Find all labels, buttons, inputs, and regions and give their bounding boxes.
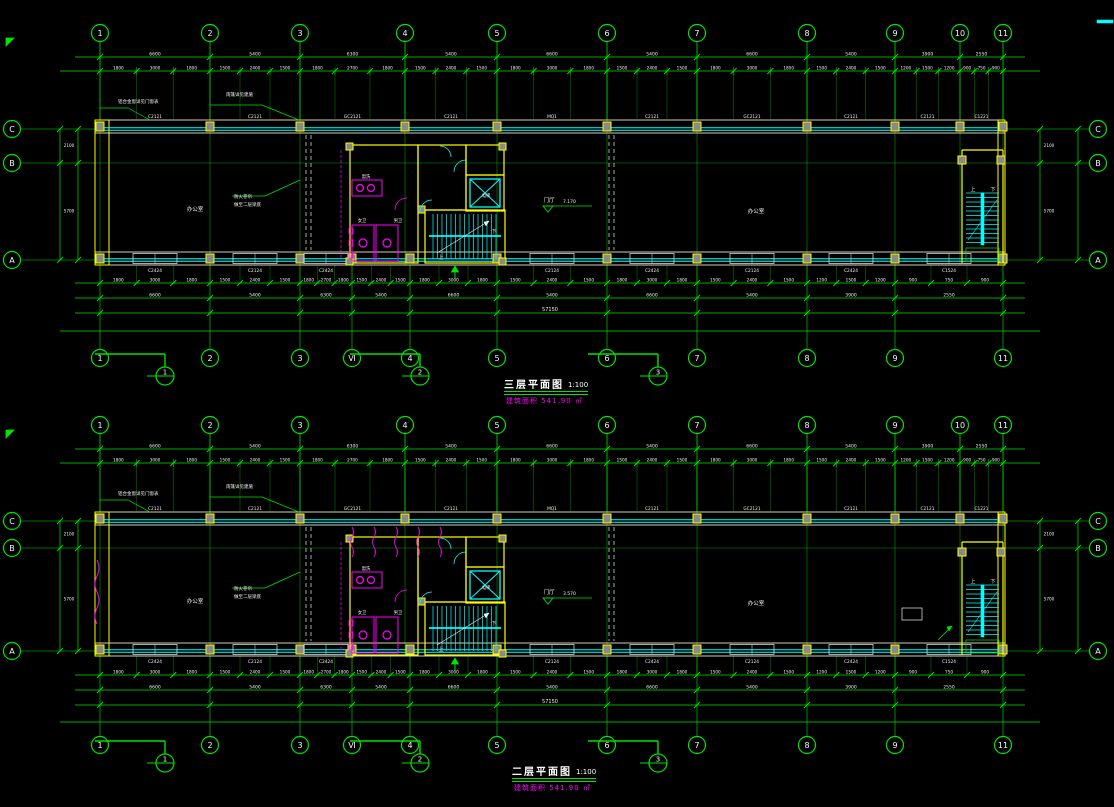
svg-text:2700: 2700 [321,670,332,675]
svg-text:5: 5 [494,741,499,750]
plan1-area-note: 建筑面积 541.90 ㎡ [506,396,583,406]
svg-text:下: 下 [990,187,995,193]
plan1-scale: 1:100 [568,381,588,389]
cad-viewport[interactable]: 1234567891011123Ⅵ45678911CCBBAA660018003… [0,0,1114,807]
svg-text:1500: 1500 [677,458,688,463]
svg-text:3000: 3000 [547,458,558,463]
svg-text:1800: 1800 [583,66,594,71]
svg-text:2700: 2700 [347,458,358,463]
svg-text:8: 8 [804,29,809,38]
svg-text:1800: 1800 [312,458,323,463]
svg-text:办公室: 办公室 [187,205,204,213]
svg-text:上: 上 [970,578,975,585]
svg-text:C2121: C2121 [844,506,858,512]
svg-text:1800: 1800 [477,278,488,283]
svg-text:C2121: C2121 [248,506,262,512]
svg-text:C2124: C2124 [248,268,262,274]
svg-text:1500: 1500 [510,278,521,283]
svg-text:9: 9 [892,741,897,750]
svg-text:11: 11 [998,741,1008,750]
svg-text:1800: 1800 [312,66,323,71]
svg-text:5400: 5400 [445,444,457,450]
svg-text:2400: 2400 [846,458,857,463]
svg-text:1200: 1200 [875,278,886,283]
svg-text:铝合金窗详见门窗表: 铝合金窗详见门窗表 [118,98,159,105]
svg-text:B: B [1095,544,1101,553]
svg-text:3900: 3900 [845,685,857,691]
svg-text:1800: 1800 [710,66,721,71]
svg-text:上: 上 [970,186,975,193]
svg-text:2400: 2400 [547,278,558,283]
svg-text:5400: 5400 [646,52,658,58]
svg-text:1800: 1800 [510,458,521,463]
svg-text:2400: 2400 [250,670,261,675]
svg-text:C: C [1095,125,1101,134]
svg-text:2700: 2700 [321,278,332,283]
svg-text:1200: 1200 [816,278,827,283]
svg-text:2400: 2400 [250,278,261,283]
svg-text:门厅: 门厅 [543,196,555,204]
svg-text:1: 1 [97,29,102,38]
svg-text:7: 7 [694,354,699,363]
svg-text:5: 5 [494,354,499,363]
svg-text:6600: 6600 [149,444,161,450]
svg-text:1500: 1500 [583,278,594,283]
svg-text:2: 2 [418,369,422,377]
svg-text:2400: 2400 [250,458,261,463]
svg-text:C1524: C1524 [942,659,956,665]
svg-text:防火卷帘: 防火卷帘 [234,585,252,592]
plan2-area-note: 建筑面积 541.90 ㎡ [514,783,591,793]
svg-text:C2124: C2124 [545,659,559,665]
svg-text:3000: 3000 [150,670,161,675]
svg-text:1800: 1800 [113,278,124,283]
svg-text:1800: 1800 [617,278,628,283]
svg-text:3900: 3900 [922,444,934,450]
svg-text:1800: 1800 [783,458,794,463]
svg-text:2700: 2700 [347,66,358,71]
svg-text:5: 5 [494,421,499,430]
svg-text:Ⅵ: Ⅵ [348,741,355,750]
svg-text:6300: 6300 [320,685,332,691]
svg-text:1800: 1800 [710,458,721,463]
svg-text:1800: 1800 [303,670,314,675]
svg-text:1800: 1800 [783,66,794,71]
svg-text:5400: 5400 [546,685,558,691]
svg-text:9: 9 [892,354,897,363]
svg-text:2: 2 [207,354,212,363]
svg-text:11: 11 [998,421,1008,430]
svg-text:11: 11 [998,354,1008,363]
svg-text:C2121: C2121 [645,114,659,120]
svg-text:1500: 1500 [816,66,827,71]
svg-text:办公室: 办公室 [187,597,204,605]
svg-text:C2121: C2121 [645,506,659,512]
svg-text:3000: 3000 [448,670,459,675]
svg-text:6600: 6600 [646,293,658,299]
svg-text:雨篷详见建施: 雨篷详见建施 [226,91,253,98]
svg-text:5400: 5400 [249,444,261,450]
svg-text:1200: 1200 [900,66,911,71]
svg-text:1500: 1500 [875,458,886,463]
svg-text:2400: 2400 [747,670,758,675]
svg-text:2400: 2400 [747,278,758,283]
svg-text:1500: 1500 [617,66,628,71]
svg-text:10: 10 [955,421,965,430]
svg-text:4: 4 [402,29,407,38]
svg-text:1200: 1200 [944,66,955,71]
svg-text:1500: 1500 [356,278,367,283]
svg-text:8: 8 [804,421,809,430]
svg-text:1500: 1500 [922,458,933,463]
svg-text:3: 3 [656,756,660,764]
svg-text:上: 上 [438,646,443,653]
svg-text:6: 6 [604,354,609,363]
plan-2f-walls: C2121C2121GC2121C2121MQ1C2121GC2121C2121… [95,506,1007,665]
svg-text:2550: 2550 [943,293,955,299]
svg-text:5400: 5400 [445,52,457,58]
svg-text:1500: 1500 [395,670,406,675]
svg-text:750: 750 [945,278,953,283]
svg-text:6: 6 [604,741,609,750]
svg-text:1500: 1500 [677,66,688,71]
svg-text:5400: 5400 [249,685,261,691]
svg-text:3: 3 [297,421,302,430]
svg-text:1800: 1800 [338,278,349,283]
svg-text:3.570: 3.570 [563,591,576,597]
svg-text:2400: 2400 [647,458,658,463]
svg-text:C2121: C2121 [921,114,935,120]
svg-text:6600: 6600 [149,685,161,691]
svg-text:750: 750 [978,66,986,71]
svg-text:盥洗: 盥洗 [362,173,371,180]
svg-text:电梯: 电梯 [482,192,491,199]
svg-text:1200: 1200 [900,458,911,463]
svg-text:900: 900 [981,278,989,283]
svg-text:A: A [9,647,15,656]
plan1-title-underline [504,391,588,395]
svg-text:1800: 1800 [382,458,393,463]
svg-text:4: 4 [407,741,412,750]
svg-text:C: C [9,125,15,134]
svg-text:GC2121: GC2121 [344,506,362,512]
svg-text:3000: 3000 [547,66,558,71]
svg-text:1500: 1500 [875,66,886,71]
svg-text:下: 下 [491,621,496,627]
svg-text:11: 11 [998,29,1008,38]
svg-text:C2124: C2124 [545,268,559,274]
svg-text:6: 6 [604,421,609,430]
svg-text:9: 9 [892,421,897,430]
svg-text:750: 750 [978,458,986,463]
svg-text:3000: 3000 [747,458,758,463]
svg-text:B: B [9,544,15,553]
svg-text:3900: 3900 [845,293,857,299]
svg-text:防火卷帘: 防火卷帘 [234,193,252,200]
svg-text:1800: 1800 [113,458,124,463]
svg-text:3000: 3000 [150,66,161,71]
svg-text:6300: 6300 [320,293,332,299]
svg-text:C1524: C1524 [942,268,956,274]
plan-3f-axes: 1234567891011123Ⅵ45678911CCBBAA [4,25,1107,367]
svg-text:2: 2 [207,421,212,430]
svg-text:3000: 3000 [647,670,658,675]
svg-text:900: 900 [981,670,989,675]
svg-text:3: 3 [656,369,660,377]
svg-text:1500: 1500 [280,66,291,71]
svg-text:下: 下 [491,229,496,235]
svg-text:1500: 1500 [816,458,827,463]
svg-text:900: 900 [963,66,971,71]
svg-text:下: 下 [990,579,995,585]
svg-text:5700: 5700 [1044,597,1055,602]
svg-text:2400: 2400 [846,66,857,71]
svg-text:9: 9 [892,29,897,38]
plan-3f-walls: C2121C2121GC2121C2121MQ1C2121GC2121C2121… [95,114,1007,274]
svg-text:A: A [1095,256,1101,265]
core-0 [341,143,506,278]
svg-text:1500: 1500 [356,670,367,675]
svg-text:57150: 57150 [542,699,558,705]
svg-text:900: 900 [909,278,917,283]
svg-text:办公室: 办公室 [748,207,765,215]
svg-text:1500: 1500 [220,66,231,71]
svg-text:1200: 1200 [944,458,955,463]
plan2-scale: 1:100 [576,768,596,776]
svg-text:1500: 1500 [783,670,794,675]
svg-text:1500: 1500 [583,670,594,675]
svg-text:C2121: C2121 [148,114,162,120]
svg-text:7.170: 7.170 [563,199,576,205]
svg-text:10: 10 [955,29,965,38]
right-stair-392 [902,542,1005,655]
svg-text:1800: 1800 [303,278,314,283]
svg-text:C2121: C2121 [444,506,458,512]
svg-text:5400: 5400 [746,685,758,691]
svg-text:GC2121: GC2121 [743,506,761,512]
svg-text:3000: 3000 [647,278,658,283]
svg-text:女卫: 女卫 [358,217,367,224]
svg-text:1500: 1500 [710,278,721,283]
svg-text:1200: 1200 [875,670,886,675]
svg-text:5400: 5400 [249,293,261,299]
svg-text:A: A [1095,647,1101,656]
svg-text:5700: 5700 [64,597,75,602]
svg-text:C2424: C2424 [148,659,162,665]
svg-text:1800: 1800 [186,66,197,71]
svg-text:做至二层梁底: 做至二层梁底 [234,201,261,208]
svg-text:2400: 2400 [376,278,387,283]
svg-text:1500: 1500 [220,670,231,675]
svg-text:C2121: C2121 [844,114,858,120]
svg-text:雨篷详见建施: 雨篷详见建施 [226,483,253,490]
svg-text:1: 1 [97,421,102,430]
svg-text:6600: 6600 [646,685,658,691]
svg-text:C2124: C2124 [745,268,759,274]
svg-text:办公室: 办公室 [748,599,765,607]
svg-text:7: 7 [694,741,699,750]
svg-text:男卫: 男卫 [394,218,403,224]
svg-text:GC2121: GC2121 [743,114,761,120]
svg-text:1800: 1800 [338,670,349,675]
svg-text:C2121: C2121 [248,114,262,120]
svg-text:C2124: C2124 [248,659,262,665]
svg-text:Ⅵ: Ⅵ [348,354,355,363]
svg-text:6600: 6600 [149,293,161,299]
svg-text:C1221: C1221 [975,114,989,120]
svg-text:6600: 6600 [546,444,558,450]
svg-text:2100: 2100 [1044,143,1055,148]
svg-text:1800: 1800 [617,670,628,675]
svg-text:3000: 3000 [150,458,161,463]
svg-text:4: 4 [402,421,407,430]
svg-text:1800: 1800 [419,670,430,675]
svg-text:1500: 1500 [922,66,933,71]
svg-text:1800: 1800 [510,66,521,71]
svg-text:5: 5 [494,29,499,38]
svg-text:6600: 6600 [448,685,460,691]
svg-text:5700: 5700 [1044,209,1055,214]
svg-text:1500: 1500 [415,66,426,71]
svg-text:盥洗: 盥洗 [362,565,371,572]
svg-text:900: 900 [909,670,917,675]
svg-text:3000: 3000 [747,66,758,71]
svg-text:做至二层梁底: 做至二层梁底 [234,593,261,600]
svg-text:1500: 1500 [220,458,231,463]
svg-text:900: 900 [992,458,1000,463]
svg-text:1: 1 [163,756,167,764]
svg-text:2: 2 [418,756,422,764]
plan2-title-underline [512,778,596,782]
svg-text:门厅: 门厅 [543,588,555,596]
svg-text:2550: 2550 [976,444,988,450]
svg-text:2400: 2400 [250,66,261,71]
svg-text:1500: 1500 [220,278,231,283]
svg-text:1500: 1500 [846,670,857,675]
svg-text:C2121: C2121 [444,114,458,120]
svg-text:1500: 1500 [710,670,721,675]
svg-text:1800: 1800 [583,458,594,463]
svg-text:3: 3 [297,29,302,38]
svg-text:C2424: C2424 [645,659,659,665]
svg-text:2100: 2100 [1044,532,1055,537]
svg-text:1500: 1500 [280,278,291,283]
svg-text:铝合金窗详见门窗表: 铝合金窗详见门窗表 [118,490,159,497]
svg-text:1: 1 [97,741,102,750]
svg-text:C: C [1095,517,1101,526]
svg-text:8: 8 [804,354,809,363]
plan-2f-dims: 6600180030001800540015002400150063001800… [57,444,1081,723]
svg-text:1800: 1800 [677,670,688,675]
svg-text:750: 750 [945,670,953,675]
svg-text:3900: 3900 [922,52,934,58]
svg-text:6: 6 [604,29,609,38]
svg-text:5400: 5400 [249,52,261,58]
svg-text:1500: 1500 [280,458,291,463]
svg-text:57150: 57150 [542,307,558,313]
svg-text:MQ1: MQ1 [547,114,557,120]
svg-text:6600: 6600 [746,444,758,450]
svg-text:5400: 5400 [375,685,387,691]
svg-text:5400: 5400 [845,444,857,450]
svg-text:A: A [9,256,15,265]
svg-text:C1221: C1221 [975,506,989,512]
svg-text:C2424: C2424 [645,268,659,274]
svg-text:3000: 3000 [150,278,161,283]
svg-text:5400: 5400 [375,293,387,299]
svg-text:900: 900 [992,66,1000,71]
svg-text:1: 1 [97,354,102,363]
svg-text:1800: 1800 [382,66,393,71]
svg-text:6600: 6600 [149,52,161,58]
svg-text:男卫: 男卫 [394,610,403,616]
svg-text:5400: 5400 [646,444,658,450]
svg-text:1500: 1500 [395,278,406,283]
svg-text:1500: 1500 [280,670,291,675]
svg-text:2400: 2400 [376,670,387,675]
svg-text:2400: 2400 [446,458,457,463]
svg-text:B: B [1095,159,1101,168]
svg-text:女卫: 女卫 [358,609,367,616]
svg-text:1500: 1500 [476,66,487,71]
svg-text:1500: 1500 [510,670,521,675]
svg-text:1800: 1800 [113,670,124,675]
svg-text:1500: 1500 [617,458,628,463]
svg-text:1800: 1800 [677,278,688,283]
svg-text:1800: 1800 [419,278,430,283]
svg-text:2550: 2550 [943,685,955,691]
svg-text:B: B [9,159,15,168]
svg-text:6300: 6300 [347,52,359,58]
svg-text:3000: 3000 [448,278,459,283]
svg-text:C2424: C2424 [844,659,858,665]
svg-text:3: 3 [297,354,302,363]
svg-text:2400: 2400 [446,66,457,71]
svg-text:5400: 5400 [845,52,857,58]
svg-text:1500: 1500 [476,458,487,463]
svg-text:C2424: C2424 [319,268,333,274]
svg-text:电梯: 电梯 [482,584,491,591]
svg-text:5400: 5400 [546,293,558,299]
svg-text:1500: 1500 [783,278,794,283]
svg-text:C2424: C2424 [319,659,333,665]
svg-text:1500: 1500 [846,278,857,283]
svg-text:C: C [9,517,15,526]
svg-text:6600: 6600 [546,52,558,58]
plan1-title: 三层平面图 [504,376,564,391]
svg-text:6300: 6300 [347,444,359,450]
svg-text:1800: 1800 [186,278,197,283]
plan-3f-dims: 6600180030001800540015002400150063001800… [57,52,1081,332]
svg-text:C2424: C2424 [148,268,162,274]
svg-text:2100: 2100 [64,532,75,537]
svg-text:1: 1 [163,369,167,377]
svg-text:1800: 1800 [477,670,488,675]
plan2-title: 二层平面图 [512,763,572,778]
svg-text:6600: 6600 [448,293,460,299]
svg-text:C2121: C2121 [921,506,935,512]
svg-text:4: 4 [407,354,412,363]
svg-text:2: 2 [207,29,212,38]
svg-text:C2124: C2124 [745,659,759,665]
svg-text:上: 上 [438,254,443,261]
svg-text:7: 7 [694,29,699,38]
svg-text:8: 8 [804,741,809,750]
svg-text:7: 7 [694,421,699,430]
svg-text:3: 3 [297,741,302,750]
svg-text:5700: 5700 [64,209,75,214]
svg-text:2400: 2400 [647,66,658,71]
